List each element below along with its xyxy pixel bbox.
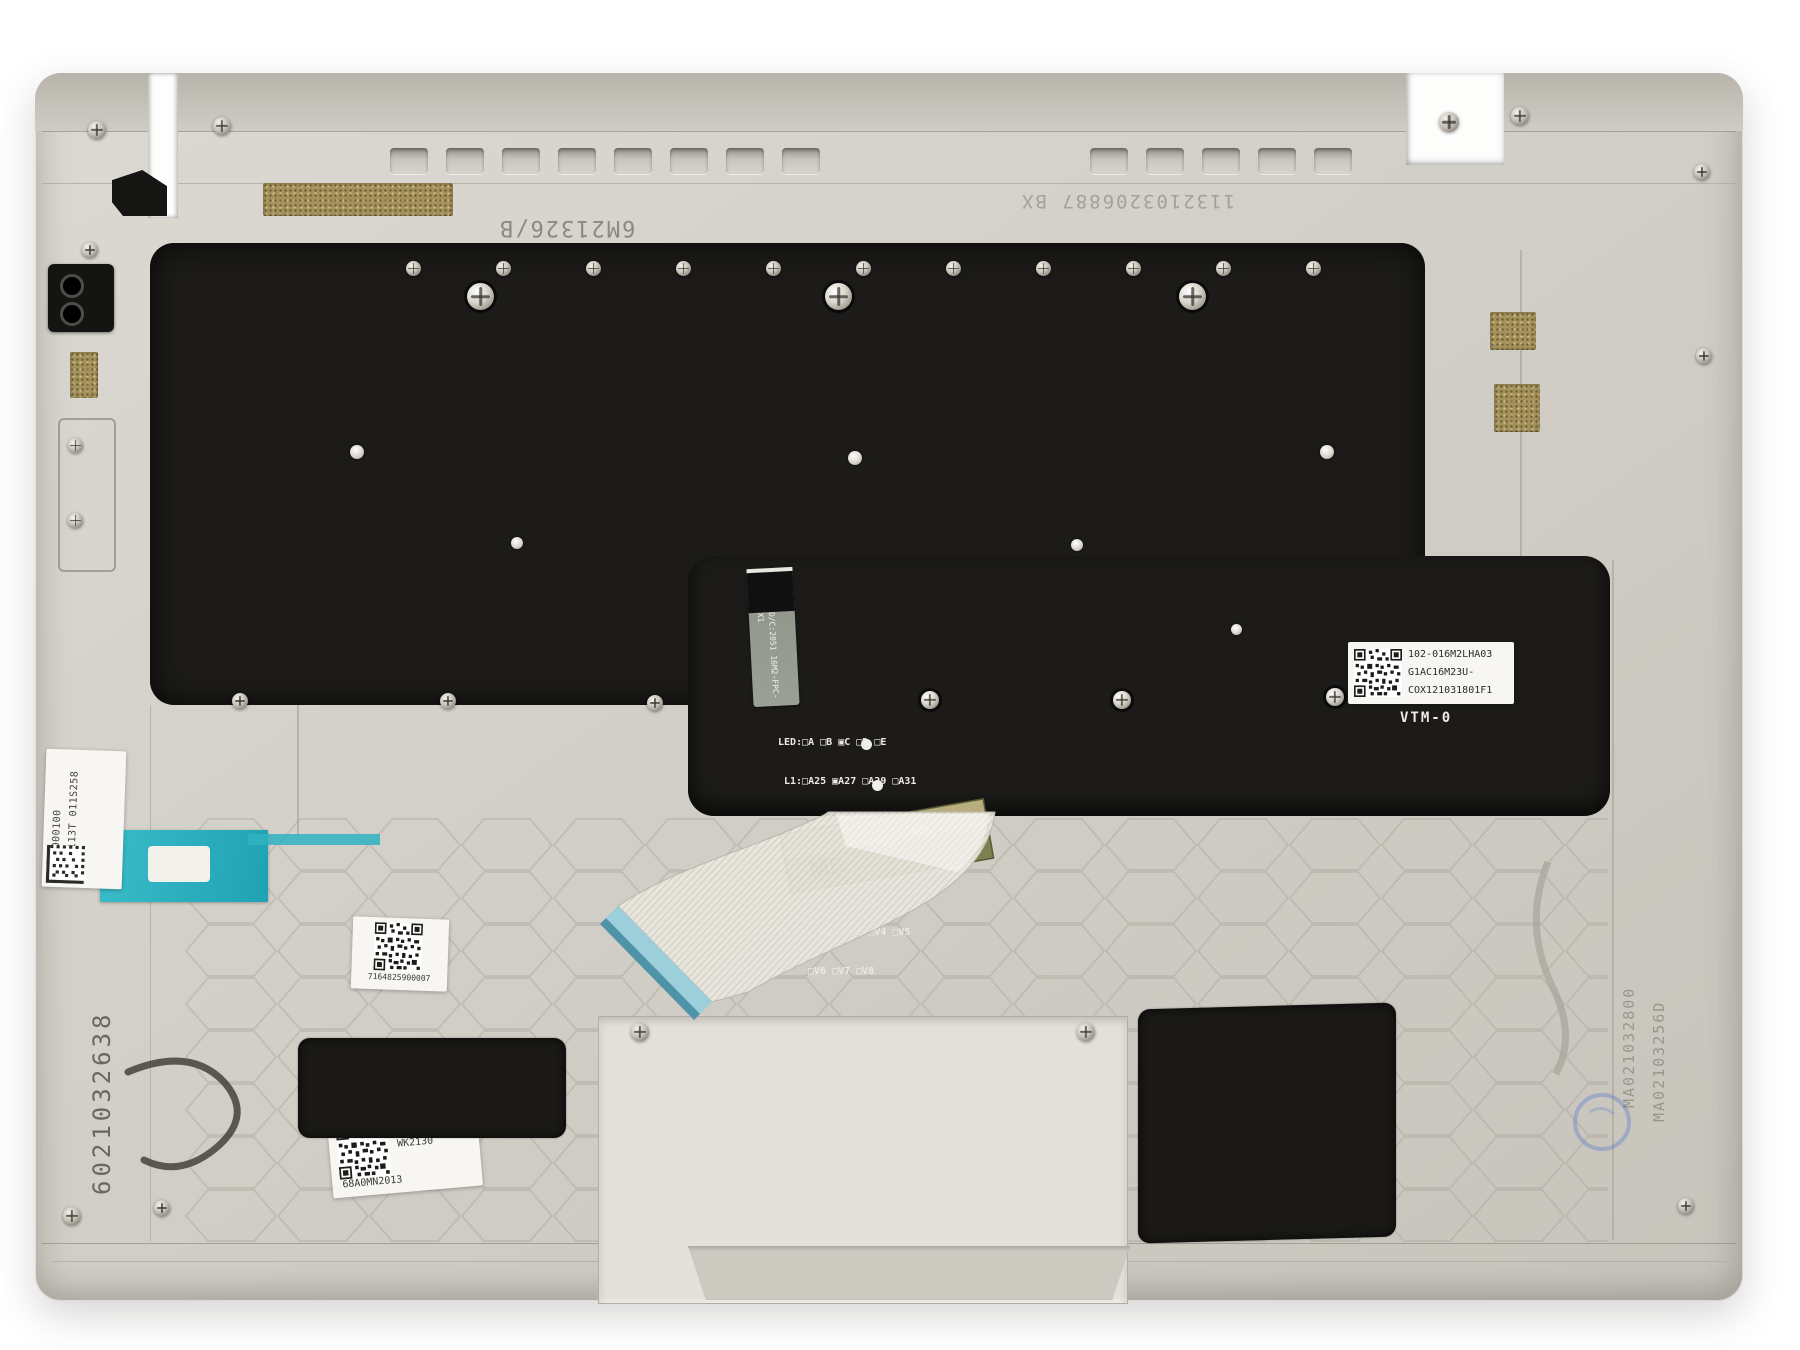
teal-tape-sliver (248, 834, 380, 845)
stamp-left-vertical: 6021032638 (88, 995, 116, 1195)
rivet (1231, 624, 1242, 635)
teal-sticker (100, 830, 268, 902)
screw (232, 693, 248, 709)
screw (82, 242, 98, 258)
product-photo: 6M21326/B 1132103206887 BX LED:□A □B ▣C … (0, 0, 1800, 1350)
screw (88, 121, 106, 139)
screw (467, 283, 494, 310)
screw (63, 1207, 81, 1225)
screw (766, 261, 781, 276)
stamp-right-vertical-b: MA02103256D (1650, 962, 1668, 1122)
screw (647, 695, 663, 711)
screw (1036, 261, 1051, 276)
handwritten-mark (128, 1061, 237, 1167)
rivet (848, 451, 862, 465)
stamp-right-vertical-a: MA021032800 (1620, 948, 1638, 1108)
datamatrix-icon (46, 845, 85, 884)
screw (1179, 283, 1206, 310)
serial-label-side: AM36W000100 MGD10113T 011S258 (42, 749, 127, 890)
screw (631, 1023, 649, 1041)
screw (1696, 348, 1712, 364)
qr-label-mid-code: 7164825900007 (351, 971, 447, 983)
screw (1694, 164, 1710, 180)
screw (1439, 112, 1459, 132)
screw (921, 691, 939, 709)
screw (946, 261, 961, 276)
cable-channel (1536, 862, 1565, 1074)
screw (1113, 691, 1131, 709)
screw (1511, 107, 1529, 125)
screw (1077, 1023, 1095, 1041)
teal-sticker-window (148, 846, 210, 882)
screw (1678, 1198, 1694, 1214)
screw (1326, 688, 1344, 706)
screw (825, 283, 852, 310)
rivet (1071, 539, 1083, 551)
screw (154, 1200, 170, 1216)
rivet (1320, 445, 1334, 459)
screw (676, 261, 691, 276)
screw (406, 261, 421, 276)
screw (586, 261, 601, 276)
screw (1216, 261, 1231, 276)
rubber-pad-left (298, 1038, 566, 1138)
rivet (350, 445, 364, 459)
screw (68, 438, 83, 453)
screw (856, 261, 871, 276)
deco-layer: 3M VHB 3M (0, 0, 1800, 1350)
screw (213, 117, 231, 135)
qr-code-icon (373, 922, 423, 972)
qr-label-mid: 7164825900007 (351, 916, 449, 991)
serial-line: 011S258 (68, 771, 81, 817)
screw (1126, 261, 1141, 276)
keyboard-ribbon-cable (600, 812, 995, 1020)
screw (440, 693, 456, 709)
screw (496, 261, 511, 276)
rivet (511, 537, 523, 549)
rubber-pad-right (1138, 1003, 1396, 1244)
screw (68, 513, 83, 528)
screw (1306, 261, 1321, 276)
